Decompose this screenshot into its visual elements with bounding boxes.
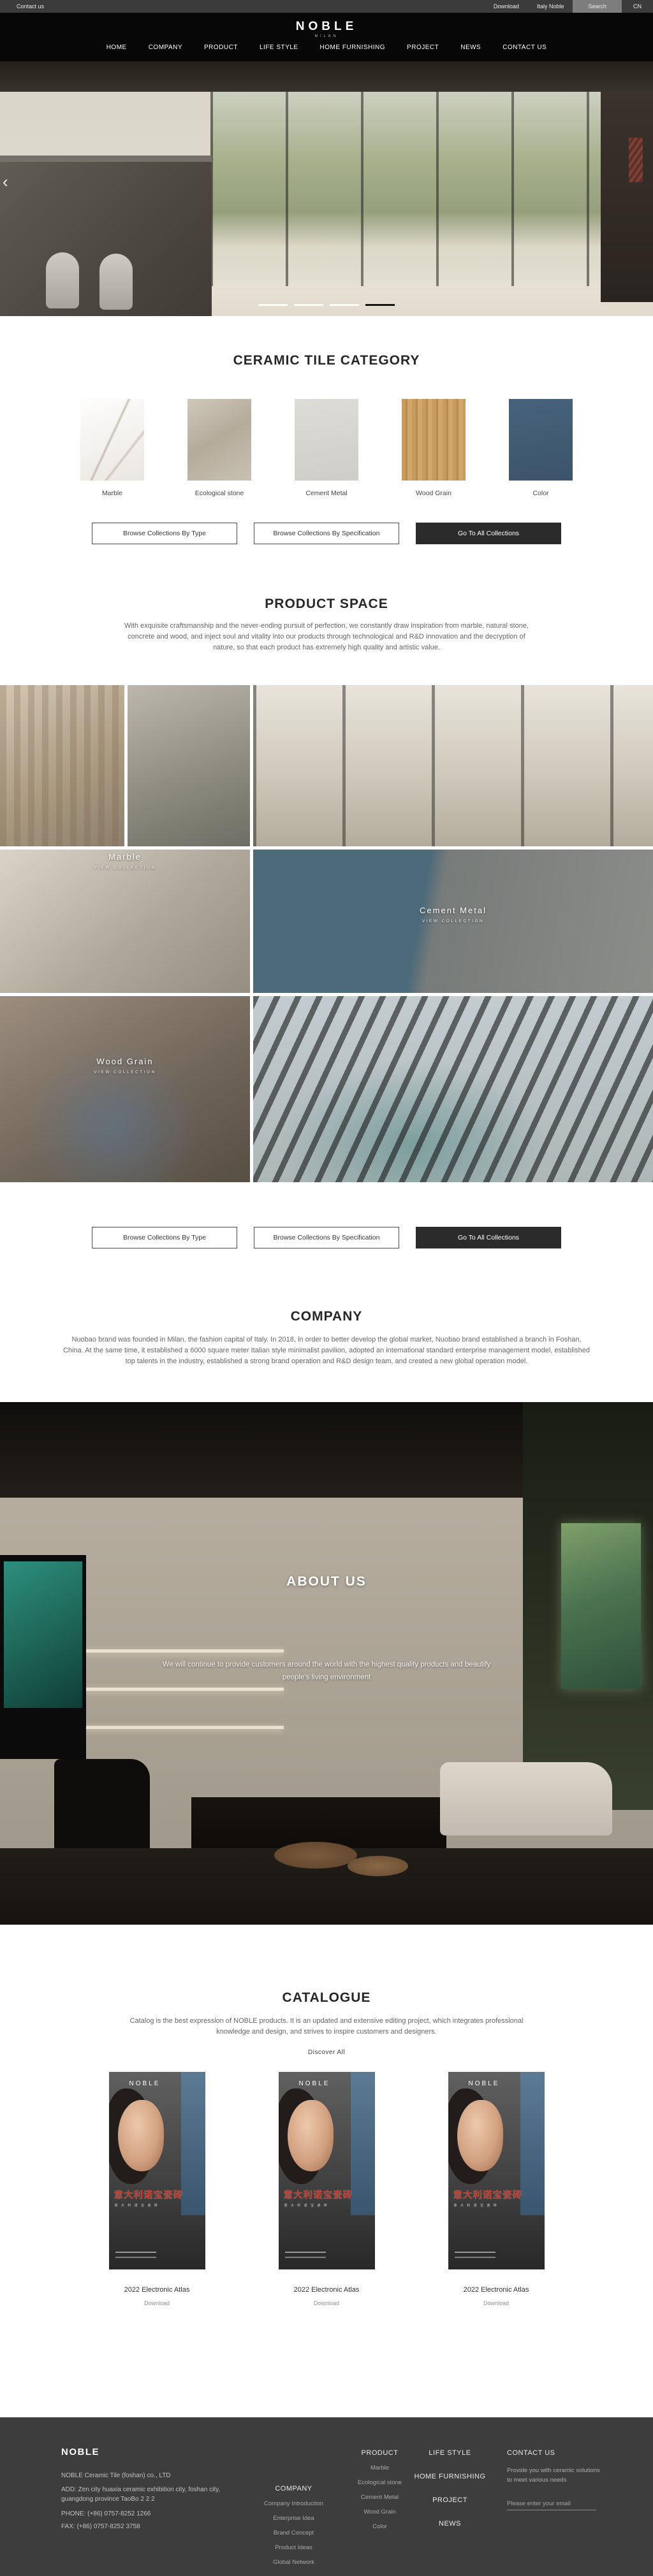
footer-address: ADD: Zen city huaxia ceramic exhibition … bbox=[61, 2485, 233, 2504]
nav-project[interactable]: PROJECT bbox=[407, 44, 439, 51]
swatch-label-color: Color bbox=[503, 489, 578, 497]
company-title: COMPANY bbox=[0, 1309, 653, 1324]
cover-title: 意大利诺宝瓷砖 bbox=[453, 2188, 539, 2201]
email-input[interactable] bbox=[507, 2498, 596, 2510]
swatch-label-ecological-stone: Ecological stone bbox=[182, 489, 257, 497]
cover-model-face bbox=[118, 2100, 164, 2171]
pagination-dash-4-active[interactable] bbox=[365, 304, 395, 306]
nav-news[interactable]: NEWS bbox=[460, 44, 481, 51]
hero-image-counter-top bbox=[0, 156, 212, 162]
about-image-coffee-table bbox=[274, 1842, 357, 1869]
cover-brand: NOBLE bbox=[109, 2080, 181, 2087]
footer-link-marble[interactable]: Marble bbox=[346, 2464, 413, 2471]
brand-logo-subtitle: MILAN bbox=[0, 34, 653, 38]
footer-company-title[interactable]: COMPANY bbox=[247, 2485, 340, 2493]
catalogue-item-1: NOBLE 意大利诺宝瓷砖 意 大 利 诺 宝 瓷 砖 2022 Electro… bbox=[109, 2072, 205, 2306]
brand-logo[interactable]: NOBLE bbox=[0, 13, 653, 34]
discover-all-link[interactable]: Discover All bbox=[0, 2049, 653, 2056]
hero-image-ceiling bbox=[0, 61, 653, 92]
about-image-sofa bbox=[440, 1762, 612, 1835]
gallery-label-cement-metal: Cement Metal bbox=[253, 906, 653, 915]
gallery-tile-cement-metal[interactable]: Cement Metal VIEW COLLECTION bbox=[253, 850, 653, 993]
swatch-label-marble: Marble bbox=[75, 489, 150, 497]
cover-title: 意大利诺宝瓷砖 bbox=[114, 2188, 200, 2201]
atlas-cover-3[interactable]: NOBLE 意大利诺宝瓷砖 意 大 利 诺 宝 瓷 砖 bbox=[448, 2072, 545, 2269]
gallery-tile-marble[interactable]: Marble VIEW COLLECTION bbox=[0, 850, 250, 993]
footer-product-title[interactable]: PRODUCT bbox=[346, 2449, 413, 2457]
browse-by-type-button[interactable]: Browse Collections By Type bbox=[92, 523, 237, 544]
hero-pagination bbox=[0, 304, 653, 306]
view-collection-link-marble[interactable]: VIEW COLLECTION bbox=[0, 865, 250, 870]
go-to-all-collections-button[interactable]: Go To All Collections bbox=[416, 523, 561, 544]
ceramic-tile-category-section: CERAMIC TILE CATEGORY Marble Ecological … bbox=[0, 316, 653, 557]
about-description: We will continue to provide customers ar… bbox=[0, 1658, 653, 1684]
hero-slider: ‹ bbox=[0, 61, 653, 316]
hero-image-stool bbox=[99, 254, 133, 310]
category-buttons: Browse Collections By Type Browse Collec… bbox=[0, 523, 653, 544]
gallery-tile-wood-grain[interactable]: Wood Grain VIEW COLLECTION bbox=[0, 996, 250, 1182]
footer-brand-logo[interactable]: NOBLE bbox=[61, 2447, 99, 2457]
swatch-wood-grain[interactable] bbox=[402, 399, 466, 481]
swatch-marble[interactable] bbox=[80, 399, 144, 481]
hero-image-wardrobe bbox=[601, 92, 653, 302]
cover-brand: NOBLE bbox=[448, 2080, 520, 2087]
about-title: ABOUT US bbox=[0, 1574, 653, 1589]
cover-text-line bbox=[115, 2252, 156, 2253]
footer-link-color[interactable]: Color bbox=[346, 2523, 413, 2530]
swatch-ecological-stone[interactable] bbox=[187, 399, 251, 481]
nav-home[interactable]: HOME bbox=[106, 44, 127, 51]
product-space-buttons: Browse Collections By Type Browse Collec… bbox=[0, 1227, 653, 1248]
cover-title: 意大利诺宝瓷砖 bbox=[284, 2188, 370, 2201]
cover-text-line bbox=[455, 2252, 495, 2253]
atlas-download-2[interactable]: Download bbox=[279, 2300, 375, 2306]
hero-image-garment bbox=[629, 138, 643, 182]
footer-link-wood-grain[interactable]: Wood Grain bbox=[346, 2508, 413, 2515]
swatch-color[interactable] bbox=[509, 399, 573, 481]
footer-column-company: COMPANY Company Introduction Enterprise … bbox=[247, 2449, 340, 2576]
top-utility-bar: Contact us Download Italy Noble Search C… bbox=[0, 0, 653, 13]
gallery-image-living-room[interactable] bbox=[128, 685, 250, 846]
gallery-image-slat-ceiling-room[interactable] bbox=[253, 996, 653, 1182]
nav-company[interactable]: COMPANY bbox=[149, 44, 182, 51]
nav-contact-us[interactable]: CONTACT US bbox=[503, 44, 547, 51]
about-image-coffee-table bbox=[348, 1856, 408, 1876]
contact-us-link[interactable]: Contact us bbox=[0, 3, 44, 10]
category-title: CERAMIC TILE CATEGORY bbox=[0, 353, 653, 368]
cover-subtitle: 意 大 利 诺 宝 瓷 砖 bbox=[115, 2203, 159, 2208]
search-button[interactable]: Search bbox=[573, 0, 622, 13]
footer-contact-blurb: Provide you with ceramic solutions to me… bbox=[507, 2466, 603, 2485]
cover-brand: NOBLE bbox=[279, 2080, 351, 2087]
atlas-download-3[interactable]: Download bbox=[448, 2300, 545, 2306]
footer: NOBLE NOBLE Ceramic Tile (foshan) co., L… bbox=[0, 2417, 653, 2576]
footer-fax: FAX: (+86) 0757-8252 3758 bbox=[61, 2523, 140, 2530]
atlas-cover-1[interactable]: NOBLE 意大利诺宝瓷砖 意 大 利 诺 宝 瓷 砖 bbox=[109, 2072, 205, 2269]
pagination-dash-3[interactable] bbox=[330, 304, 359, 306]
gallery-label-wood-grain: Wood Grain bbox=[0, 1057, 250, 1066]
nav-home-furnishing[interactable]: HOME FURNISHING bbox=[320, 44, 386, 51]
swatch-label-cement-metal: Cement Metal bbox=[289, 489, 364, 497]
catalogue-description: Catalog is the best expression of NOBLE … bbox=[129, 2016, 524, 2037]
atlas-cover-2[interactable]: NOBLE 意大利诺宝瓷砖 意 大 利 诺 宝 瓷 砖 bbox=[279, 2072, 375, 2269]
italy-noble-link[interactable]: Italy Noble bbox=[528, 3, 573, 10]
gallery-image-wood-panel-room[interactable] bbox=[0, 685, 124, 846]
company-description: Nuobao brand was founded in Milan, the f… bbox=[62, 1335, 591, 1367]
company-section: COMPANY Nuobao brand was founded in Mila… bbox=[0, 1273, 653, 1402]
product-space-title: PRODUCT SPACE bbox=[0, 597, 653, 612]
hero-image-stool bbox=[46, 252, 79, 308]
cover-model-face bbox=[457, 2100, 503, 2171]
footer-column-contact: CONTACT US Provide you with ceramic solu… bbox=[507, 2449, 603, 2510]
footer-link-home-furnishing[interactable]: HOME FURNISHING bbox=[413, 2473, 487, 2480]
cover-subtitle: 意 大 利 诺 宝 瓷 砖 bbox=[454, 2203, 498, 2208]
catalogue-item-2: NOBLE 意大利诺宝瓷砖 意 大 利 诺 宝 瓷 砖 2022 Electro… bbox=[279, 2072, 375, 2306]
footer-link-global-network[interactable]: Global Network bbox=[247, 2559, 340, 2566]
footer-link-life-style[interactable]: LIFE STYLE bbox=[413, 2449, 487, 2457]
footer-contact-title[interactable]: CONTACT US bbox=[507, 2449, 603, 2457]
footer-phone: PHONE: (+86) 0757-8252 1266 bbox=[61, 2510, 150, 2517]
catalogue-item-3: NOBLE 意大利诺宝瓷砖 意 大 利 诺 宝 瓷 砖 2022 Electro… bbox=[448, 2072, 545, 2306]
main-nav: HOME COMPANY PRODUCT LIFE STYLE HOME FUR… bbox=[0, 44, 653, 51]
cover-text-line bbox=[285, 2252, 326, 2253]
view-collection-link-wood-grain[interactable]: VIEW COLLECTION bbox=[0, 1070, 250, 1075]
language-switch-cn[interactable]: CN bbox=[622, 3, 653, 10]
hero-image-window bbox=[210, 92, 653, 286]
footer-link-ecological-stone[interactable]: Ecological stone bbox=[346, 2479, 413, 2486]
catalogue-section: CATALOGUE Catalog is the best expression… bbox=[0, 1925, 653, 2417]
footer-column-lifestyle: LIFE STYLE HOME FURNISHING PROJECT NEWS bbox=[413, 2449, 487, 2528]
pagination-dash-2[interactable] bbox=[294, 304, 323, 306]
atlas-download-1[interactable]: Download bbox=[109, 2300, 205, 2306]
swatch-label-wood-grain: Wood Grain bbox=[396, 489, 471, 497]
footer-link-brand-concept[interactable]: Brand Concept bbox=[247, 2529, 340, 2536]
cover-subtitle: 意 大 利 诺 宝 瓷 砖 bbox=[284, 2203, 328, 2208]
footer-link-project[interactable]: PROJECT bbox=[413, 2496, 487, 2504]
catalogue-covers: NOBLE 意大利诺宝瓷砖 意 大 利 诺 宝 瓷 砖 2022 Electro… bbox=[0, 2072, 653, 2306]
gallery-image-glass-door-room[interactable] bbox=[253, 685, 653, 846]
footer-link-product-ideas[interactable]: Product Ideas bbox=[247, 2544, 340, 2551]
site-header: NOBLE MILAN HOME COMPANY PRODUCT LIFE ST… bbox=[0, 13, 653, 61]
swatch-cement-metal[interactable] bbox=[295, 399, 358, 481]
gallery-label-marble: Marble bbox=[0, 852, 250, 862]
footer-company-name: NOBLE Ceramic Tile (foshan) co., LTD bbox=[61, 2472, 171, 2479]
pagination-dash-1[interactable] bbox=[258, 304, 288, 306]
footer-link-news[interactable]: NEWS bbox=[413, 2520, 487, 2528]
browse-by-specification-button[interactable]: Browse Collections By Specification bbox=[254, 523, 399, 544]
footer-link-cement-metal[interactable]: Cement Metal bbox=[346, 2494, 413, 2501]
nav-life-style[interactable]: LIFE STYLE bbox=[260, 44, 298, 51]
category-swatches: Marble Ecological stone Cement Metal Woo… bbox=[75, 399, 578, 497]
cover-model-face bbox=[288, 2100, 334, 2171]
product-space-section: PRODUCT SPACE With exquisite craftsmansh… bbox=[0, 557, 653, 1273]
download-link[interactable]: Download bbox=[485, 3, 528, 10]
product-space-description: With exquisite craftsmanship and the nev… bbox=[122, 621, 531, 653]
nav-product[interactable]: PRODUCT bbox=[204, 44, 238, 51]
footer-column-product: PRODUCT Marble Ecological stone Cement M… bbox=[346, 2449, 413, 2530]
catalogue-title: CATALOGUE bbox=[0, 1990, 653, 2006]
atlas-caption-2: 2022 Electronic Atlas bbox=[279, 2286, 375, 2294]
page: Contact us Download Italy Noble Search C… bbox=[0, 0, 653, 2576]
product-space-gallery: Marble VIEW COLLECTION Cement Metal VIEW… bbox=[0, 685, 653, 1182]
browse-by-specification-button-2[interactable]: Browse Collections By Specification bbox=[254, 1227, 399, 1248]
about-us-section: ABOUT US We will continue to provide cus… bbox=[0, 1402, 653, 1925]
go-to-all-collections-button-2[interactable]: Go To All Collections bbox=[416, 1227, 561, 1248]
view-collection-link-cement-metal[interactable]: VIEW COLLECTION bbox=[253, 919, 653, 923]
chevron-left-icon[interactable]: ‹ bbox=[3, 173, 8, 190]
footer-link-enterprise-idea[interactable]: Enterprise Idea bbox=[247, 2515, 340, 2522]
atlas-caption-3: 2022 Electronic Atlas bbox=[448, 2286, 545, 2294]
footer-link-company-introduction[interactable]: Company Introduction bbox=[247, 2500, 340, 2507]
browse-by-type-button-2[interactable]: Browse Collections By Type bbox=[92, 1227, 237, 1248]
atlas-caption-1: 2022 Electronic Atlas bbox=[109, 2286, 205, 2294]
